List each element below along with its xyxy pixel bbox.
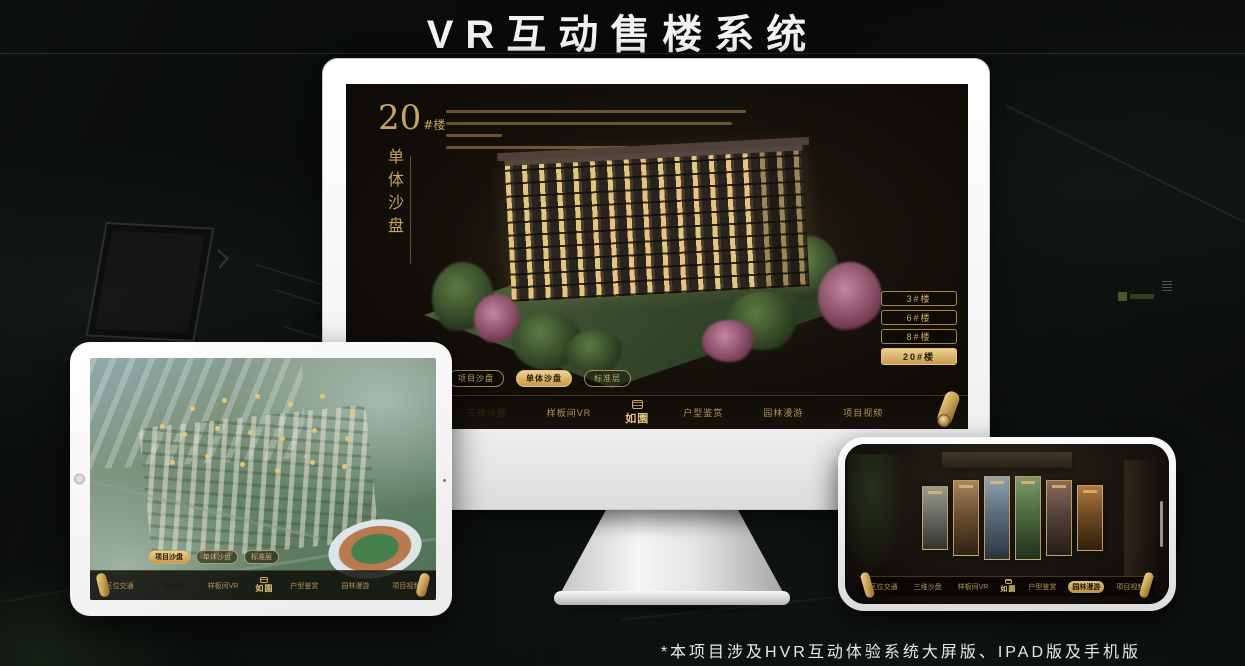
floor-button-8[interactable]: 8#楼 bbox=[881, 329, 957, 344]
flower-bush-icon bbox=[818, 262, 882, 332]
gallery-panel-building[interactable] bbox=[984, 476, 1010, 560]
camera-icon bbox=[443, 479, 446, 482]
gallery-panel-study[interactable] bbox=[1077, 485, 1103, 551]
background-plaque bbox=[86, 222, 215, 342]
tab-single-sandbox[interactable]: 单体沙盘 bbox=[196, 550, 238, 564]
brand-logo[interactable]: 如園 bbox=[1000, 579, 1016, 594]
building-3d-model[interactable] bbox=[416, 144, 896, 394]
page: VR互动售楼系统 20#楼 单体沙盘 3#楼 bbox=[0, 0, 1245, 666]
phone-device: 区位交通 三维沙盘 样板间VR 如園 户型鉴赏 园林漫游 项目视频 bbox=[838, 437, 1176, 611]
monitor-stand bbox=[560, 508, 784, 594]
headline-vertical-title: 单体沙盘 bbox=[382, 148, 406, 240]
floor-button-group: 3#楼 6#楼 8#楼 20#楼 bbox=[881, 291, 957, 365]
tab-project-sandbox[interactable]: 项目沙盘 bbox=[148, 550, 190, 564]
scene-gallery bbox=[909, 466, 1115, 570]
nav-item-3d-sandbox[interactable]: 三维沙盘 bbox=[910, 581, 946, 593]
background-road-line bbox=[1005, 104, 1245, 237]
nav-item-model-room-vr[interactable]: 样板间VR bbox=[537, 402, 602, 423]
tablet-view-tabs: 项目沙盘 单体沙盘 标准层 bbox=[148, 550, 279, 564]
brand-logo-text: 如園 bbox=[255, 583, 273, 594]
gallery-panel-courtyard[interactable] bbox=[922, 486, 948, 550]
nav-item-garden-tour[interactable]: 园林漫游 bbox=[1068, 581, 1104, 593]
headline-number: 20#楼 bbox=[378, 98, 445, 138]
home-indicator[interactable] bbox=[1160, 501, 1163, 547]
background-logo-mark bbox=[1118, 292, 1127, 301]
tablet-navbar: 区位交通 三维沙盘 样板间VR 如園 户型鉴赏 园林漫游 项目视频 bbox=[90, 570, 436, 600]
nav-item-garden-tour[interactable]: 园林漫游 bbox=[335, 578, 375, 594]
wood-column bbox=[1124, 460, 1160, 582]
tab-project-sandbox[interactable]: 项目沙盘 bbox=[448, 370, 504, 387]
background-logo-text bbox=[1130, 294, 1154, 299]
background-arrow bbox=[209, 249, 229, 269]
phone-screen: 区位交通 三维沙盘 样板间VR 如園 户型鉴赏 园林漫游 项目视频 bbox=[845, 444, 1169, 604]
brand-logo-text: 如園 bbox=[625, 410, 649, 426]
brand-logo[interactable]: 如園 bbox=[625, 400, 649, 426]
tree-icon bbox=[566, 330, 624, 374]
monitor-stand-base bbox=[554, 591, 790, 605]
residential-building bbox=[504, 144, 809, 301]
gallery-panel-entrance[interactable] bbox=[1046, 480, 1072, 556]
nav-item-garden-tour[interactable]: 园林漫游 bbox=[753, 402, 813, 423]
tab-standard-floor[interactable]: 标准层 bbox=[584, 370, 631, 387]
tablet-device: 项目沙盘 单体沙盘 标准层 区位交通 三维沙盘 样板间VR 如園 户型鉴赏 园林… bbox=[70, 342, 452, 616]
gallery-panel-interior[interactable] bbox=[953, 480, 979, 556]
background-grid-icon bbox=[1162, 281, 1172, 291]
seal-icon bbox=[632, 400, 643, 409]
nav-item-floorplan-gallery[interactable]: 户型鉴赏 bbox=[1024, 581, 1060, 593]
nav-item-project-video[interactable]: 项目视频 bbox=[833, 402, 893, 423]
headline-divider bbox=[410, 156, 411, 264]
view-tab-group: 项目沙盘 单体沙盘 标准层 bbox=[448, 370, 631, 387]
phone-navbar: 区位交通 三维沙盘 样板间VR 如園 户型鉴赏 园林漫游 项目视频 bbox=[859, 576, 1155, 596]
home-button[interactable] bbox=[74, 474, 85, 485]
floor-button-20[interactable]: 20#楼 bbox=[881, 348, 957, 365]
tab-standard-floor[interactable]: 标准层 bbox=[244, 550, 279, 564]
flower-bush-icon bbox=[702, 320, 756, 362]
nav-item-3d-sandbox[interactable]: 三维沙盘 bbox=[151, 578, 191, 594]
brand-logo[interactable]: 如園 bbox=[255, 577, 273, 594]
nav-item-model-room-vr[interactable]: 样板间VR bbox=[202, 578, 245, 594]
page-title: VR互动售楼系统 bbox=[0, 2, 1245, 60]
nav-item-3d-sandbox[interactable]: 三维沙盘 bbox=[457, 402, 517, 423]
plant-silhouette bbox=[848, 454, 906, 572]
nav-item-model-room-vr[interactable]: 样板间VR bbox=[954, 581, 993, 593]
floor-button-6[interactable]: 6#楼 bbox=[881, 310, 957, 325]
tab-single-sandbox[interactable]: 单体沙盘 bbox=[516, 370, 572, 387]
tablet-screen: 项目沙盘 单体沙盘 标准层 区位交通 三维沙盘 样板间VR 如園 户型鉴赏 园林… bbox=[90, 358, 436, 600]
floor-button-3[interactable]: 3#楼 bbox=[881, 291, 957, 306]
gallery-panel-garden[interactable] bbox=[1015, 476, 1041, 560]
headline-suffix: #楼 bbox=[423, 118, 445, 132]
nav-item-floorplan-gallery[interactable]: 户型鉴赏 bbox=[284, 578, 324, 594]
building-number-badges[interactable] bbox=[160, 424, 165, 429]
scroll-icon[interactable] bbox=[936, 389, 962, 426]
brand-logo-text: 如園 bbox=[1000, 584, 1016, 594]
footnote: *本项目涉及HVR互动体验系统大屏版、IPAD版及手机版 bbox=[661, 638, 1141, 662]
nav-item-floorplan-gallery[interactable]: 户型鉴赏 bbox=[673, 402, 733, 423]
